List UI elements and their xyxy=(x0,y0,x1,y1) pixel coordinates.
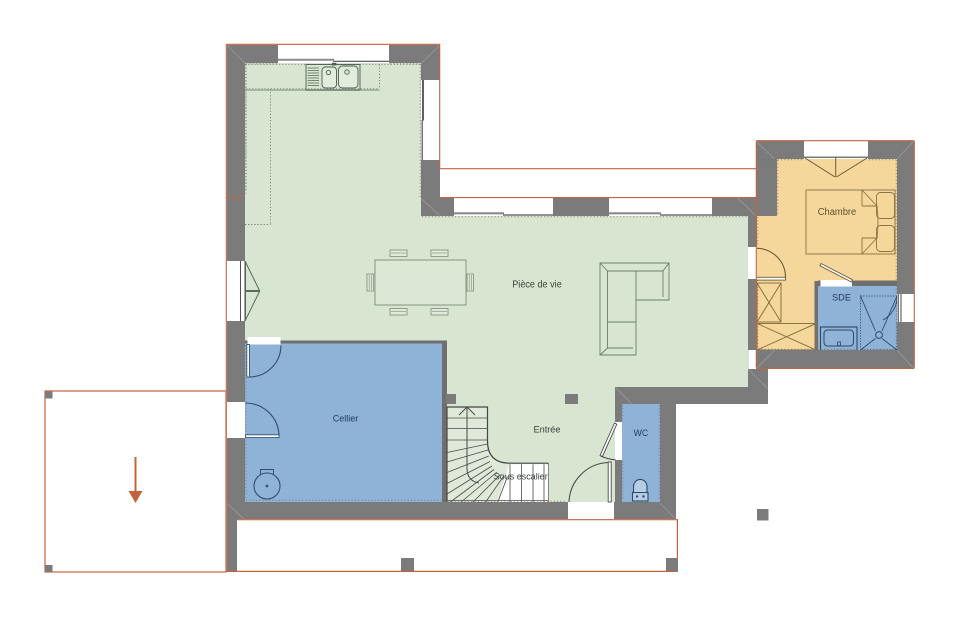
svg-text:WC: WC xyxy=(634,428,649,439)
svg-text:SDE: SDE xyxy=(832,293,851,304)
svg-text:Chambre: Chambre xyxy=(818,207,857,218)
svg-text:Cellier: Cellier xyxy=(333,414,359,425)
svg-text:Sous escalier: Sous escalier xyxy=(494,472,548,483)
svg-text:Entrée: Entrée xyxy=(534,425,561,436)
svg-text:Pièce de vie: Pièce de vie xyxy=(512,279,562,291)
